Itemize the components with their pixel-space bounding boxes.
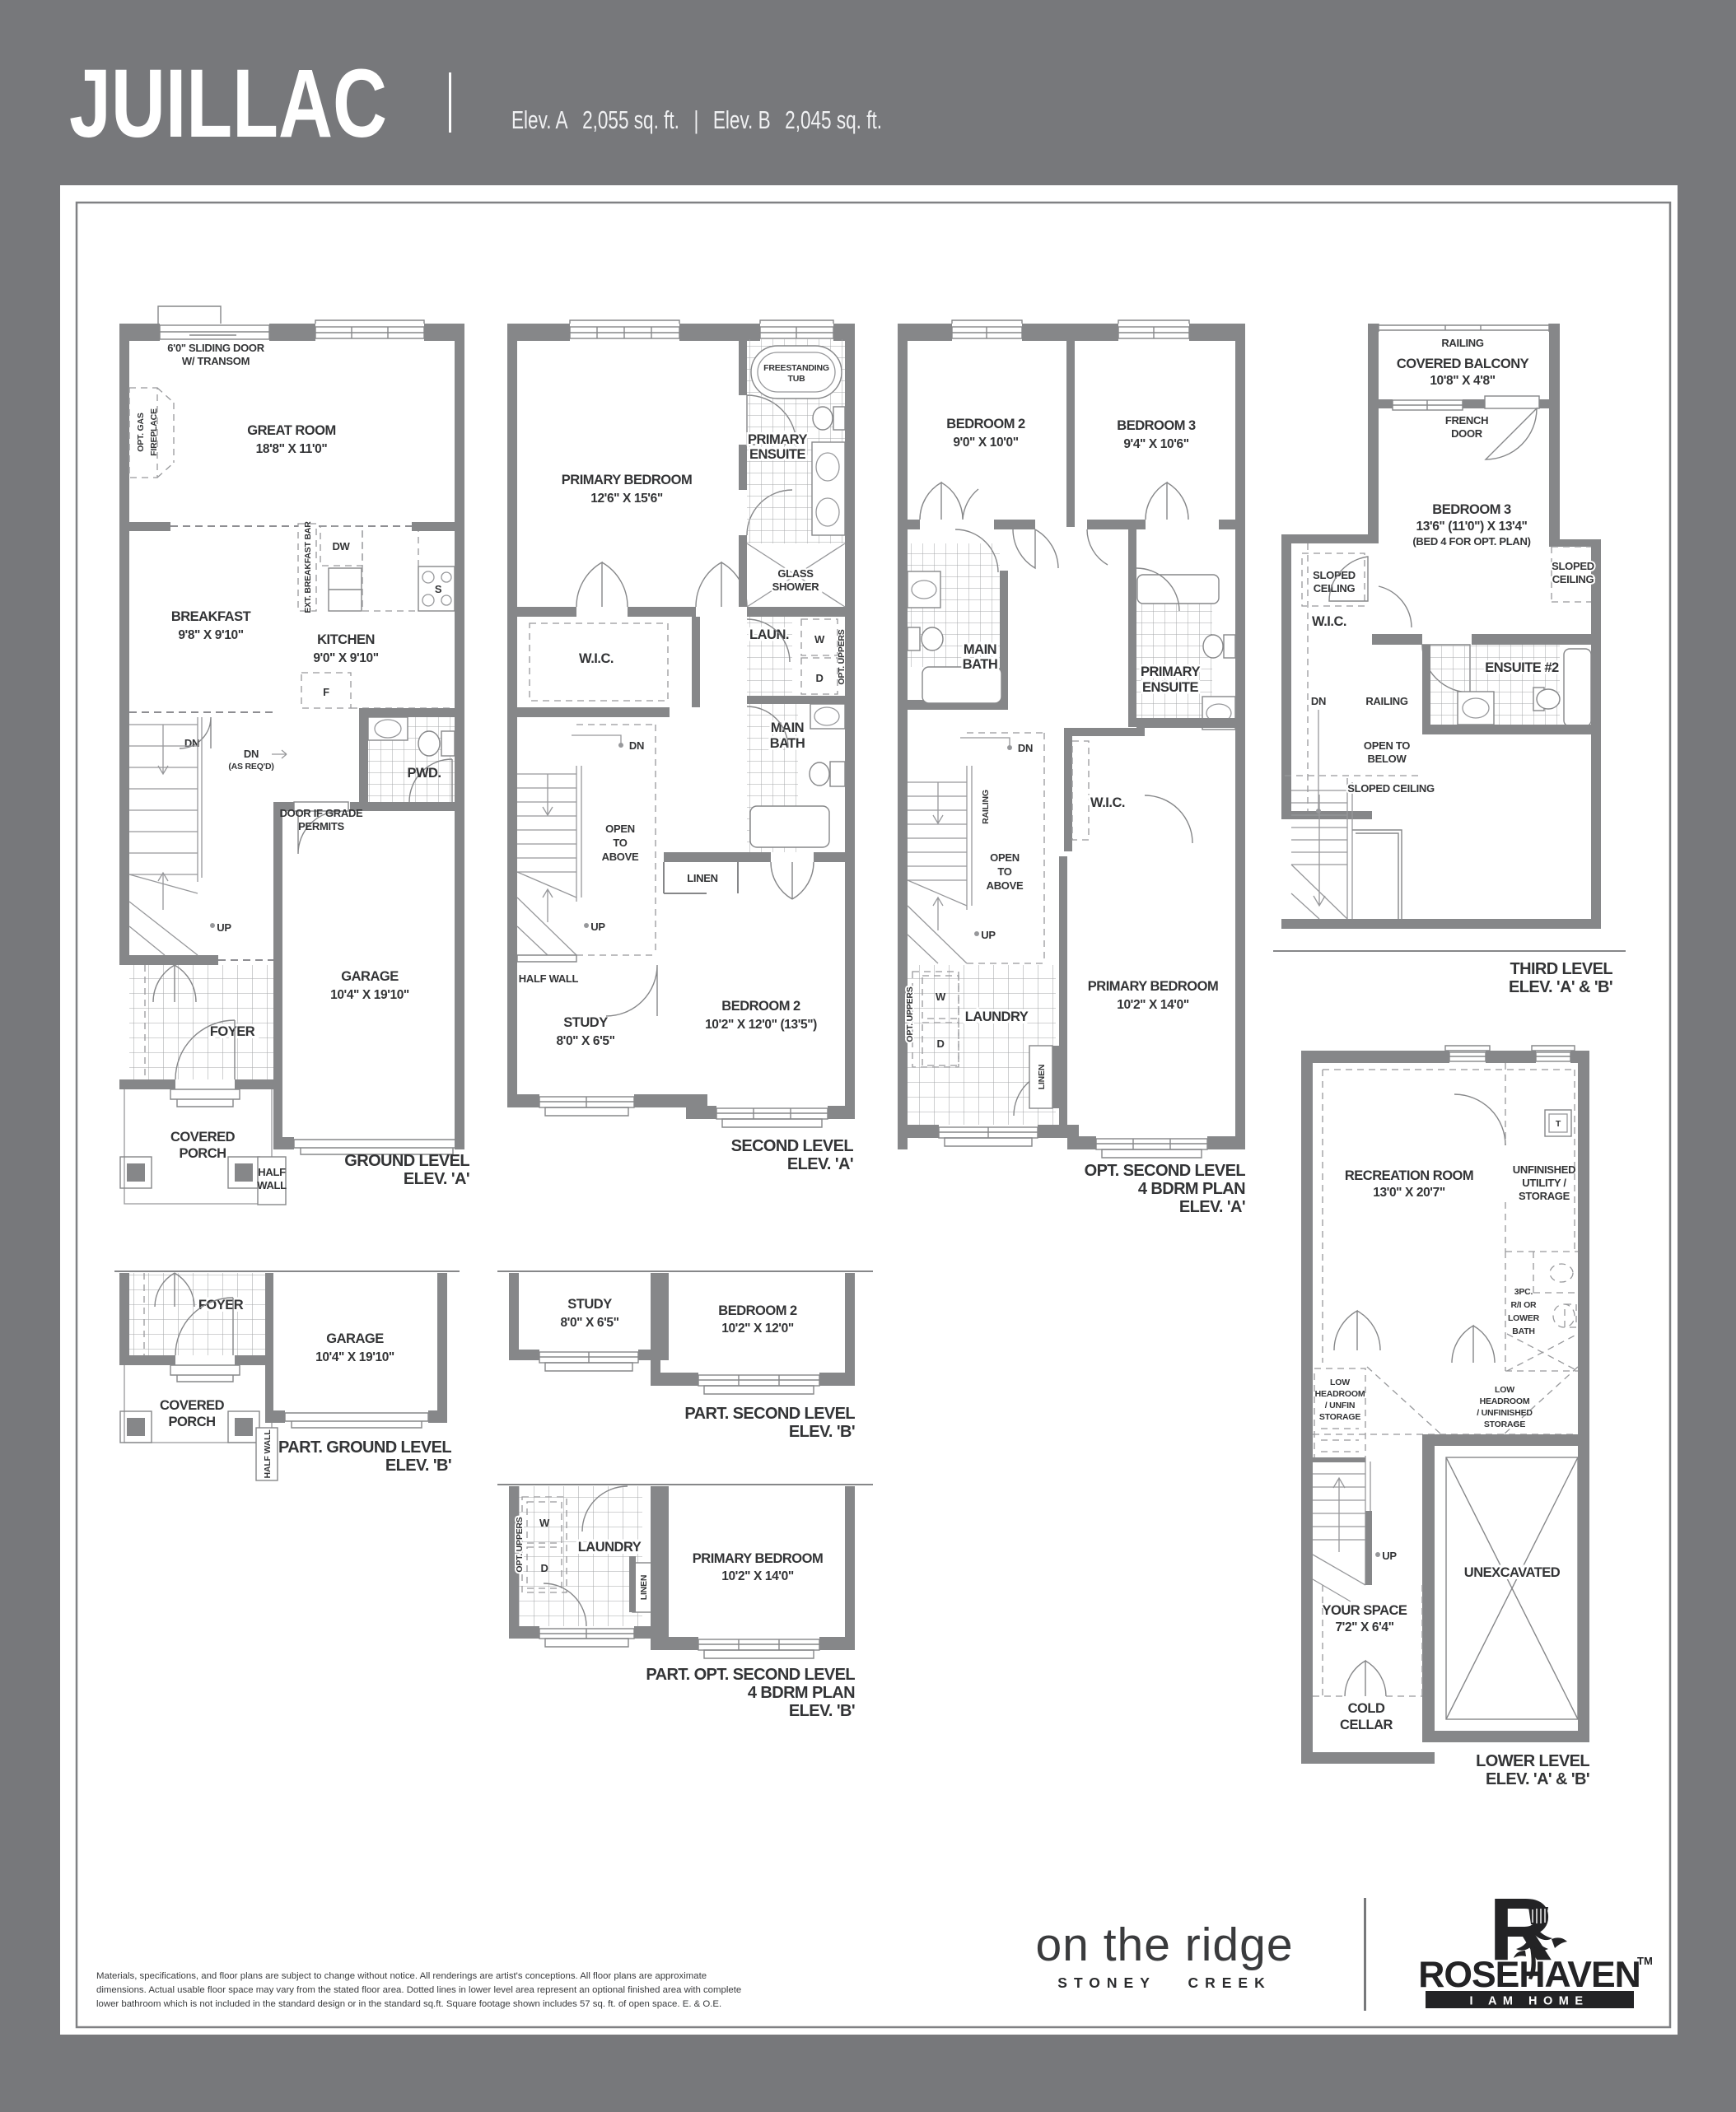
svg-text:SLOPED: SLOPED bbox=[1552, 560, 1594, 572]
svg-text:HALF: HALF bbox=[258, 1166, 286, 1178]
svg-text:/ UNFIN: / UNFIN bbox=[1325, 1401, 1356, 1410]
svg-text:PART. OPT. SECOND LEVEL: PART. OPT. SECOND LEVEL bbox=[646, 1666, 855, 1684]
svg-text:COVERED BALCONY: COVERED BALCONY bbox=[1397, 357, 1529, 371]
svg-text:PORCH: PORCH bbox=[168, 1415, 215, 1429]
svg-text:8'0" X 6'5": 8'0" X 6'5" bbox=[556, 1034, 614, 1048]
svg-text:PORCH: PORCH bbox=[179, 1146, 226, 1161]
svg-text:HALF WALL: HALF WALL bbox=[263, 1429, 273, 1479]
svg-text:(AS REQ'D): (AS REQ'D) bbox=[228, 762, 273, 772]
svg-text:UP: UP bbox=[590, 921, 605, 933]
svg-text:LINEN: LINEN bbox=[687, 872, 718, 884]
svg-text:BEDROOM 2: BEDROOM 2 bbox=[946, 417, 1025, 431]
svg-text:RECREATION ROOM: RECREATION ROOM bbox=[1345, 1168, 1473, 1183]
svg-text:DN: DN bbox=[1018, 742, 1033, 754]
svg-text:9'8" X 9'10": 9'8" X 9'10" bbox=[178, 628, 243, 642]
svg-text:UNFINISHED: UNFINISHED bbox=[1513, 1163, 1575, 1176]
svg-text:DOOR: DOOR bbox=[1451, 427, 1483, 440]
svg-text:SLOPED CEILING: SLOPED CEILING bbox=[1347, 782, 1435, 795]
svg-text:STUDY: STUDY bbox=[563, 1015, 608, 1030]
svg-text:dimensions. Actual usable floo: dimensions. Actual usable floor space ma… bbox=[96, 1985, 741, 1995]
svg-text:W: W bbox=[814, 633, 825, 646]
svg-text:S: S bbox=[435, 583, 442, 595]
svg-text:SHOWER: SHOWER bbox=[772, 580, 820, 593]
svg-text:HEADROOM: HEADROOM bbox=[1315, 1389, 1365, 1399]
svg-text:FRENCH: FRENCH bbox=[1445, 414, 1488, 427]
svg-text:10'2" X 12'0" (13'5"): 10'2" X 12'0" (13'5") bbox=[705, 1018, 817, 1032]
svg-text:on the ridge: on the ridge bbox=[1035, 1919, 1293, 1971]
svg-text:10'2" X 14'0": 10'2" X 14'0" bbox=[721, 1569, 794, 1583]
svg-text:BATH: BATH bbox=[1512, 1326, 1535, 1336]
svg-text:ELEV. 'A': ELEV. 'A' bbox=[1179, 1198, 1245, 1216]
svg-text:W.I.C.: W.I.C. bbox=[1090, 795, 1125, 810]
svg-text:BEDROOM 3: BEDROOM 3 bbox=[1117, 418, 1196, 433]
svg-text:7'2" X 6'4": 7'2" X 6'4" bbox=[1335, 1620, 1393, 1634]
svg-text:OPT. UPPERS: OPT. UPPERS bbox=[837, 629, 847, 684]
svg-text:CEILING: CEILING bbox=[1314, 582, 1356, 594]
svg-text:LOWER: LOWER bbox=[1508, 1313, 1540, 1323]
svg-text:YOUR SPACE: YOUR SPACE bbox=[1323, 1603, 1407, 1618]
svg-text:PRIMARY: PRIMARY bbox=[1141, 664, 1200, 679]
svg-text:BEDROOM 2: BEDROOM 2 bbox=[718, 1303, 797, 1318]
svg-text:ABOVE: ABOVE bbox=[602, 851, 639, 863]
svg-text:ELEV. 'A': ELEV. 'A' bbox=[404, 1170, 469, 1188]
svg-text:/ UNFINISHED: / UNFINISHED bbox=[1477, 1408, 1533, 1418]
svg-text:DN: DN bbox=[244, 748, 259, 760]
svg-text:D: D bbox=[936, 1037, 944, 1050]
svg-text:WALL: WALL bbox=[257, 1179, 287, 1191]
svg-text:LOW: LOW bbox=[1495, 1385, 1514, 1395]
svg-text:W: W bbox=[936, 991, 946, 1003]
svg-text:10'8" X 4'8": 10'8" X 4'8" bbox=[1430, 374, 1495, 388]
svg-text:ELEV. 'B': ELEV. 'B' bbox=[789, 1423, 855, 1441]
svg-text:LAUN.: LAUN. bbox=[749, 627, 789, 642]
svg-text:LOW: LOW bbox=[1330, 1378, 1350, 1387]
svg-text:18'8" X 11'0": 18'8" X 11'0" bbox=[256, 442, 328, 456]
svg-text:PRIMARY BEDROOM: PRIMARY BEDROOM bbox=[562, 473, 692, 487]
svg-text:DW: DW bbox=[332, 540, 350, 552]
svg-text:10'2" X 14'0": 10'2" X 14'0" bbox=[1117, 998, 1189, 1012]
svg-text:ENSUITE #2: ENSUITE #2 bbox=[1485, 660, 1559, 675]
svg-text:12'6" X 15'6": 12'6" X 15'6" bbox=[590, 492, 663, 506]
svg-text:OPT. GAS: OPT. GAS bbox=[136, 413, 146, 452]
svg-text:10'4" X 19'10": 10'4" X 19'10" bbox=[330, 988, 409, 1002]
svg-text:HALF WALL: HALF WALL bbox=[519, 972, 579, 985]
svg-text:9'0" X 9'10": 9'0" X 9'10" bbox=[313, 651, 378, 665]
svg-text:OPEN: OPEN bbox=[990, 851, 1020, 864]
svg-text:STORAGE: STORAGE bbox=[1484, 1420, 1526, 1429]
svg-text:BEDROOM 2: BEDROOM 2 bbox=[721, 999, 800, 1014]
svg-text:GREAT ROOM: GREAT ROOM bbox=[247, 423, 335, 438]
svg-text:OPEN: OPEN bbox=[605, 823, 635, 835]
svg-text:R/I OR: R/I OR bbox=[1511, 1300, 1538, 1310]
svg-text:RAILING: RAILING bbox=[981, 790, 991, 824]
svg-text:PRIMARY BEDROOM: PRIMARY BEDROOM bbox=[693, 1551, 823, 1566]
svg-text:DN: DN bbox=[629, 739, 644, 752]
svg-text:10'4" X 19'10": 10'4" X 19'10" bbox=[315, 1350, 394, 1364]
svg-text:6'0" SLIDING DOOR: 6'0" SLIDING DOOR bbox=[167, 342, 264, 354]
svg-text:ELEV. 'A': ELEV. 'A' bbox=[787, 1155, 853, 1173]
svg-text:ELEV. 'A' & 'B': ELEV. 'A' & 'B' bbox=[1486, 1770, 1589, 1788]
svg-text:STONEY CREEK: STONEY CREEK bbox=[1057, 1974, 1271, 1991]
svg-text:PART. SECOND LEVEL: PART. SECOND LEVEL bbox=[684, 1405, 855, 1423]
svg-text:MAIN: MAIN bbox=[964, 642, 996, 657]
svg-text:GARAGE: GARAGE bbox=[341, 969, 399, 984]
svg-text:MAIN: MAIN bbox=[771, 720, 804, 735]
svg-text:BREAKFAST: BREAKFAST bbox=[171, 609, 251, 624]
svg-text:PWD.: PWD. bbox=[407, 766, 441, 781]
svg-text:FIREPLACE: FIREPLACE bbox=[149, 408, 159, 456]
svg-text:TUB: TUB bbox=[788, 374, 806, 384]
svg-text:ENSUITE: ENSUITE bbox=[749, 447, 806, 462]
svg-text:4 BDRM PLAN: 4 BDRM PLAN bbox=[748, 1684, 855, 1702]
svg-text:TO: TO bbox=[997, 865, 1011, 878]
svg-text:JUILLAC: JUILLAC bbox=[69, 49, 387, 158]
svg-text:FREESTANDING: FREESTANDING bbox=[763, 363, 829, 373]
svg-text:ROSEHAVEN: ROSEHAVEN bbox=[1418, 1955, 1640, 1995]
svg-text:LOWER LEVEL: LOWER LEVEL bbox=[1476, 1752, 1589, 1770]
svg-text:BATH: BATH bbox=[963, 657, 998, 672]
svg-text:SECOND LEVEL: SECOND LEVEL bbox=[731, 1137, 854, 1155]
svg-text:PART. GROUND LEVEL: PART. GROUND LEVEL bbox=[278, 1438, 451, 1457]
svg-text:GLASS: GLASS bbox=[777, 567, 814, 580]
svg-text:CELLAR: CELLAR bbox=[1340, 1718, 1393, 1732]
svg-text:W.I.C.: W.I.C. bbox=[579, 651, 614, 666]
svg-text:KITCHEN: KITCHEN bbox=[317, 632, 375, 647]
svg-text:9'4" X 10'6": 9'4" X 10'6" bbox=[1123, 437, 1188, 451]
svg-text:ELEV. 'B': ELEV. 'B' bbox=[385, 1457, 451, 1475]
svg-text:W.I.C.: W.I.C. bbox=[1312, 614, 1346, 629]
svg-text:UTILITY /: UTILITY / bbox=[1522, 1177, 1566, 1189]
svg-text:I AM HOME: I AM HOME bbox=[1469, 1995, 1589, 2008]
svg-text:13'6" (11'0") X 13'4": 13'6" (11'0") X 13'4" bbox=[1416, 520, 1527, 534]
svg-text:FOYER: FOYER bbox=[210, 1024, 255, 1039]
svg-text:lower bathroom which is not in: lower bathroom which is not included in … bbox=[96, 1999, 721, 2009]
svg-text:OPEN TO: OPEN TO bbox=[1364, 739, 1410, 752]
svg-text:DN: DN bbox=[1311, 695, 1326, 707]
svg-text:THIRD LEVEL: THIRD LEVEL bbox=[1510, 960, 1612, 978]
svg-text:RAILING: RAILING bbox=[1365, 695, 1408, 707]
svg-text:PRIMARY: PRIMARY bbox=[748, 432, 807, 447]
svg-text:Materials, specifications, and: Materials, specifications, and floor pla… bbox=[96, 1971, 707, 1981]
svg-text:COLD: COLD bbox=[1348, 1701, 1385, 1716]
svg-text:ELEV. 'A' & 'B': ELEV. 'A' & 'B' bbox=[1509, 978, 1612, 996]
svg-text:COVERED: COVERED bbox=[160, 1398, 225, 1413]
svg-text:Elev. A 2,055 sq. ft. | Ele: Elev. A 2,055 sq. ft. | Elev. B 2,045 sq… bbox=[511, 105, 882, 134]
svg-text:F: F bbox=[323, 686, 329, 698]
svg-text:EXT. BREAKFAST BAR: EXT. BREAKFAST BAR bbox=[303, 521, 313, 613]
svg-text:UP: UP bbox=[981, 929, 996, 941]
svg-text:OPT. UPPERS: OPT. UPPERS bbox=[905, 986, 915, 1042]
svg-text:OPT. SECOND LEVEL: OPT. SECOND LEVEL bbox=[1085, 1162, 1246, 1180]
svg-text:3PC.: 3PC. bbox=[1514, 1287, 1533, 1297]
svg-text:D: D bbox=[815, 672, 823, 684]
svg-text:PERMITS: PERMITS bbox=[298, 820, 344, 832]
svg-text:OPT. UPPERS: OPT. UPPERS bbox=[515, 1517, 525, 1572]
svg-text:DOOR IF GRADE: DOOR IF GRADE bbox=[280, 807, 363, 819]
svg-text:T: T bbox=[1556, 1119, 1561, 1129]
svg-text:D: D bbox=[540, 1562, 548, 1574]
svg-text:W/ TRANSOM: W/ TRANSOM bbox=[182, 355, 250, 367]
svg-text:UP: UP bbox=[217, 921, 231, 934]
svg-text:PRIMARY BEDROOM: PRIMARY BEDROOM bbox=[1088, 979, 1218, 994]
svg-text:BEDROOM 3: BEDROOM 3 bbox=[1432, 502, 1511, 517]
svg-text:CEILING: CEILING bbox=[1552, 573, 1594, 585]
svg-text:HEADROOM: HEADROOM bbox=[1480, 1396, 1530, 1406]
svg-text:W: W bbox=[539, 1517, 550, 1529]
svg-text:ELEV. 'B': ELEV. 'B' bbox=[789, 1702, 855, 1720]
svg-text:RAILING: RAILING bbox=[1441, 337, 1484, 349]
svg-text:8'0" X 6'5": 8'0" X 6'5" bbox=[560, 1316, 618, 1330]
svg-text:LINEN: LINEN bbox=[1037, 1065, 1047, 1090]
svg-text:UP: UP bbox=[1382, 1550, 1397, 1562]
svg-text:STORAGE: STORAGE bbox=[1519, 1190, 1570, 1202]
svg-text:BELOW: BELOW bbox=[1368, 753, 1407, 765]
svg-text:GARAGE: GARAGE bbox=[326, 1331, 384, 1346]
svg-text:(BED 4 FOR OPT. PLAN): (BED 4 FOR OPT. PLAN) bbox=[1412, 535, 1530, 548]
svg-text:4 BDRM PLAN: 4 BDRM PLAN bbox=[1138, 1180, 1245, 1198]
svg-text:STORAGE: STORAGE bbox=[1319, 1412, 1361, 1422]
svg-text:13'0" X 20'7": 13'0" X 20'7" bbox=[1373, 1186, 1445, 1200]
svg-text:LAUNDRY: LAUNDRY bbox=[578, 1540, 642, 1555]
svg-text:TO: TO bbox=[613, 837, 627, 849]
svg-text:9'0" X 10'0": 9'0" X 10'0" bbox=[953, 436, 1018, 450]
svg-text:UNEXCAVATED: UNEXCAVATED bbox=[1464, 1565, 1561, 1580]
svg-text:COVERED: COVERED bbox=[170, 1130, 236, 1145]
svg-text:LINEN: LINEN bbox=[639, 1575, 649, 1601]
svg-text:LAUNDRY: LAUNDRY bbox=[965, 1009, 1029, 1024]
svg-text:GROUND LEVEL: GROUND LEVEL bbox=[344, 1152, 469, 1170]
svg-text:ENSUITE: ENSUITE bbox=[1142, 680, 1199, 695]
svg-text:TM: TM bbox=[1637, 1955, 1653, 1967]
svg-text:ABOVE: ABOVE bbox=[987, 879, 1024, 892]
svg-text:SLOPED: SLOPED bbox=[1313, 569, 1356, 581]
svg-text:10'2" X 12'0": 10'2" X 12'0" bbox=[721, 1322, 794, 1336]
svg-text:STUDY: STUDY bbox=[567, 1297, 612, 1312]
